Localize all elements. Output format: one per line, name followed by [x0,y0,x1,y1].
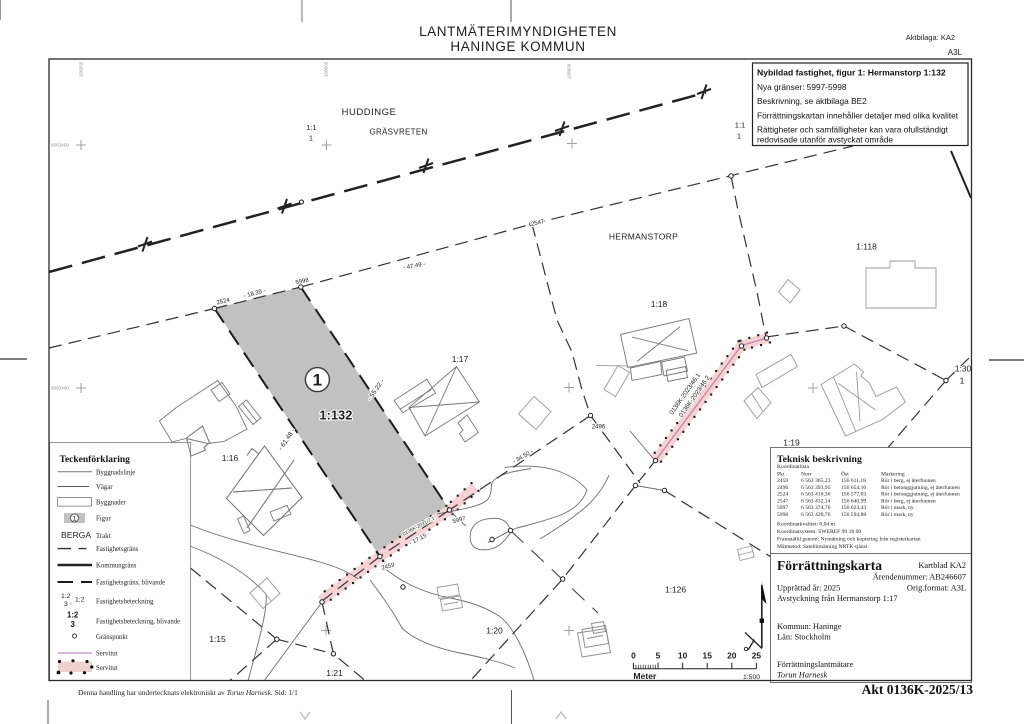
svg-text:HANINGE KOMMUN: HANINGE KOMMUN [450,39,585,54]
svg-text:Gränspunkt: Gränspunkt [96,634,128,641]
svg-text:15: 15 [703,651,713,661]
svg-text:Län: Stockholm: Län: Stockholm [777,633,831,642]
svg-text:Koordinatsystem: SWEREF 99 18: Koordinatsystem: SWEREF 99 18 00 [777,529,861,535]
svg-text:3: 3 [71,620,76,629]
svg-text:1:126: 1:126 [665,585,687,595]
svg-text:redovisade utanför avstyckat o: redovisade utanför avstyckat område [757,135,893,145]
svg-text:HERMANSTORP: HERMANSTORP [609,232,678,242]
svg-text:Beskrivning, se aktbilaga BE2: Beskrivning, se aktbilaga BE2 [757,96,867,106]
svg-text:156550: 156550 [79,61,84,77]
svg-text:2459: 2459 [777,478,788,484]
svg-text:156600: 156600 [324,61,329,77]
svg-text:Byggnadslinje: Byggnadslinje [96,469,135,476]
svg-text:Kommun: Haninge: Kommun: Haninge [777,622,842,631]
svg-text:1:1: 1:1 [306,123,316,132]
svg-text:1:1: 1:1 [735,121,745,130]
svg-text:1:18: 1:18 [651,299,668,309]
svg-text:1:16: 1:16 [222,453,239,463]
svg-text:Servitut: Servitut [96,651,118,658]
svg-text:156650: 156650 [567,63,572,79]
svg-text:1: 1 [313,371,322,390]
svg-text:5: 5 [656,651,661,661]
svg-text:1: 1 [309,134,313,143]
svg-text:Kartblad KA2: Kartblad KA2 [918,561,966,570]
svg-text:1:30: 1:30 [955,364,972,374]
svg-text:Kommungräns: Kommungräns [96,563,137,570]
svg-text:Fastighetsbeteckning, blivande: Fastighetsbeteckning, blivande [96,619,180,626]
svg-text:Vägar: Vägar [96,484,113,491]
svg-text:1:19: 1:19 [783,438,800,448]
svg-text:Teckenförklaring: Teckenförklaring [60,455,131,465]
svg-text:Rättigheter och samfälligheter: Rättigheter och samfälligheter kan vara … [757,125,949,135]
svg-text:Meter: Meter [633,671,657,681]
svg-text:10: 10 [678,651,688,661]
svg-text:Torun Harnesk: Torun Harnesk [777,671,827,680]
svg-text:20: 20 [727,651,737,661]
svg-text:Aktbilaga: KA2: Aktbilaga: KA2 [906,33,955,42]
svg-text:Rör i betonggjutning, ej återf: Rör i betonggjutning, ej återfunnen [881,484,960,491]
svg-text:6 563 416,36: 6 563 416,36 [801,492,831,498]
svg-text:0: 0 [631,651,636,661]
svg-text:Ärendenummer: AB246607: Ärendenummer: AB246607 [873,573,966,582]
svg-text:2524: 2524 [777,492,788,498]
svg-text:,: , [70,599,72,606]
svg-text:Förrättningslantmätare: Förrättningslantmätare [777,660,854,669]
svg-text:Fastighetsbeteckning: Fastighetsbeteckning [96,599,154,606]
svg-text:Nya gränser: 5997-5998: Nya gränser: 5997-5998 [757,82,847,92]
svg-text:Rör i mark, ny: Rör i mark, ny [881,512,914,518]
svg-text:1:2: 1:2 [67,611,79,620]
svg-text:HUDDINGE: HUDDINGE [342,107,397,118]
svg-text:156 623,43: 156 623,43 [841,505,866,511]
svg-text:Framställd genom: Nymätning oc: Framställd genom: Nymätning och kopierin… [777,536,921,543]
svg-text:Pkt: Pkt [777,472,785,478]
svg-text:Rör i mark, ny: Rör i mark, ny [881,505,914,511]
svg-text:Denna handling har underteckna: Denna handling har undertecknats elektro… [78,688,298,697]
svg-text:Förrättningskartan innehåller: Förrättningskartan innehåller detaljer m… [757,111,959,121]
svg-text:Fastighetsgräns, blivande: Fastighetsgräns, blivande [96,580,165,587]
svg-text:Markering: Markering [881,472,905,478]
svg-text:5997: 5997 [777,505,788,511]
svg-text:8563450: 8563450 [51,143,69,148]
svg-text:Akt 0136K-2025/13: Akt 0136K-2025/13 [862,682,974,697]
svg-text:Rör i berg, ej återfunnen: Rör i berg, ej återfunnen [881,497,936,504]
svg-text:1:132: 1:132 [320,409,353,423]
svg-text:5998: 5998 [777,512,788,518]
svg-text:25: 25 [752,651,762,661]
svg-text:A3L: A3L [948,48,963,57]
svg-text:Koordinatlista: Koordinatlista [777,464,810,470]
svg-text:1:118: 1:118 [856,242,877,252]
svg-text:Fastighetsgräns: Fastighetsgräns [96,546,139,553]
svg-text:Trakt: Trakt [96,533,111,540]
svg-text:1: 1 [73,516,77,523]
svg-text:6 563 374,76: 6 563 374,76 [801,505,831,511]
svg-text:LANTMÄTERIMYNDIGHETEN: LANTMÄTERIMYNDIGHETEN [419,24,617,39]
svg-text:6 563 420,76: 6 563 420,76 [801,512,831,518]
svg-text:156 611,18: 156 611,18 [841,478,866,484]
svg-text:Avstyckning från Hermanstorp 1: Avstyckning från Hermanstorp 1:17 [777,594,898,603]
svg-text:6 563 365,23: 6 563 365,23 [801,478,831,484]
svg-text:156 654,10: 156 654,10 [841,485,866,491]
svg-text:Figur: Figur [96,516,111,523]
svg-text:1: 1 [960,376,965,386]
svg-text:Koordinatkvalitet: 0,04 m: Koordinatkvalitet: 0,04 m [777,522,836,528]
svg-text:Rör i berg, ej återfunnen: Rör i berg, ej återfunnen [881,477,936,484]
svg-text:1: 1 [737,132,741,141]
svg-text:Öst: Öst [841,471,849,478]
svg-text:1:21: 1:21 [326,668,343,678]
svg-text:2496: 2496 [777,485,788,491]
svg-text:Upprättad år: 2025: Upprättad år: 2025 [777,584,840,593]
svg-text:1:20: 1:20 [486,626,503,636]
svg-text:Norr: Norr [801,472,812,478]
svg-text:156 594,88: 156 594,88 [841,512,866,518]
svg-text:2547: 2547 [777,498,788,504]
svg-text:2496: 2496 [592,425,606,431]
svg-text:1:15: 1:15 [209,634,226,644]
svg-text:GRÄSVRETEN: GRÄSVRETEN [369,128,427,137]
svg-text:1:17: 1:17 [452,354,469,364]
svg-text:Byggnader: Byggnader [96,499,127,506]
svg-text:1:2: 1:2 [75,597,85,604]
svg-text:Mätmetod: Satellitmätning NRTK: Mätmetod: Satellitmätning NRTK-tjänst [777,544,868,550]
svg-text:Förrättningskarta: Förrättningskarta [777,558,882,573]
svg-text:Nybildad fastighet, figur 1: H: Nybildad fastighet, figur 1: Hermanstorp… [757,68,946,78]
svg-text:156 640,99: 156 640,99 [841,498,866,504]
svg-text:156 577,03: 156 577,03 [841,492,866,498]
svg-text:3: 3 [64,601,68,608]
svg-text:6 563 432,14: 6 563 432,14 [801,498,831,504]
svg-text:Rör i betonggjutning, ej återf: Rör i betonggjutning, ej återfunnen [881,491,960,498]
svg-text:6 563 393,95: 6 563 393,95 [801,485,831,491]
svg-text:BERGA: BERGA [61,530,91,540]
svg-text:8563400: 8563400 [51,386,69,391]
svg-text:Servitut: Servitut [96,665,118,672]
svg-text:Orig.format: A3L: Orig.format: A3L [907,584,966,593]
